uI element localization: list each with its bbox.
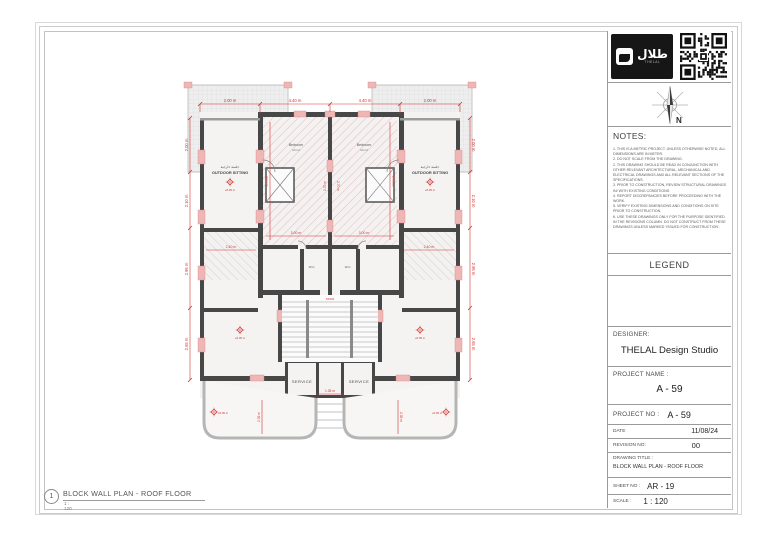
wing-room-left <box>204 232 258 280</box>
project-no-section: PROJECT NO : A - 59 <box>608 404 731 424</box>
svg-text:2.00 m: 2.00 m <box>424 98 437 103</box>
drawing-callout-title: BLOCK WALL PLAN - ROOF FLOOR <box>63 489 205 501</box>
project-name-section: PROJECT NAME : A - 59 <box>608 366 731 404</box>
project-no-value: A - 59 <box>667 410 691 420</box>
svg-text:4.75 m: 4.75 m <box>391 176 395 187</box>
svg-text:W.C.: W.C. <box>309 265 316 269</box>
svg-text:2.40 m: 2.40 m <box>226 245 237 249</box>
svg-text:Bedroom: Bedroom <box>357 143 372 147</box>
svg-text:2.95 m: 2.95 m <box>471 263 476 276</box>
svg-text:SERVICE: SERVICE <box>292 379 312 384</box>
svg-text:جلسة خارجية: جلسة خارجية <box>221 165 240 169</box>
north-compass-row: N <box>608 82 731 126</box>
svg-text:2.35 m: 2.35 m <box>399 412 403 422</box>
north-compass-icon: N <box>649 84 691 126</box>
designer-section: DESIGNER: THELAL Design Studio <box>608 326 731 366</box>
stair <box>282 295 378 362</box>
revision-label: REVISION NO: <box>613 443 646 448</box>
svg-text:جلسة خارجية: جلسة خارجية <box>421 165 440 169</box>
svg-text:3.00 m: 3.00 m <box>359 231 370 235</box>
date-section: DATE 11/08/24 <box>608 424 731 438</box>
designer-label: DESIGNER: <box>613 331 726 338</box>
walkway-steps <box>317 404 343 428</box>
floor-plan: 2.00 m 4.40 m 4.40 m 2.00 m 2.00 m 2.10 … <box>120 80 540 465</box>
svg-text:+8.05 m: +8.05 m <box>235 336 246 340</box>
drawing-title-value: BLOCK WALL PLAN - ROOF FLOOR <box>613 464 726 470</box>
svg-text:2.40 m: 2.40 m <box>424 245 435 249</box>
svg-text:SERVICE: SERVICE <box>349 379 369 384</box>
notes-section: NOTES: 1. THIS IS A METRIC PROJECT. UNLE… <box>608 126 731 253</box>
svg-text:+8.05 m: +8.05 m <box>415 336 426 340</box>
svg-text:+8.05 m: +8.05 m <box>432 411 443 415</box>
svg-text:OUTDOOR SITTING: OUTDOOR SITTING <box>412 170 448 175</box>
svg-text:2.65 m: 2.65 m <box>184 337 189 350</box>
svg-text:4.40 m: 4.40 m <box>359 98 372 103</box>
drawing-number-bubble: 1 <box>44 489 59 504</box>
project-name-label: PROJECT NAME : <box>613 371 726 378</box>
notes-header: NOTES: <box>613 131 726 141</box>
svg-text:2.00 m: 2.00 m <box>184 138 189 151</box>
svg-text:2.70 m: 2.70 m <box>323 181 327 191</box>
date-value: 11/08/24 <box>691 428 726 435</box>
title-block: طلال THELAL N NOTES: 1. THIS IS A M <box>607 31 731 508</box>
svg-text:14 m²: 14 m² <box>292 148 300 152</box>
scale-label: SCALE : <box>613 499 631 504</box>
scale-value: 1 : 120 <box>643 497 667 506</box>
brand-row: طلال THELAL <box>608 31 731 82</box>
svg-text:2.10 m: 2.10 m <box>184 194 189 207</box>
wing-room-right <box>402 232 456 280</box>
logo-arabic-text: طلال <box>637 48 668 60</box>
sheet-no-label: SHEET NO : <box>613 484 640 489</box>
svg-text:+8.05 m: +8.05 m <box>425 188 436 192</box>
project-no-label: PROJECT NO : <box>613 411 659 418</box>
svg-text:4.40 m: 4.40 m <box>289 98 302 103</box>
svg-text:14 m²: 14 m² <box>360 148 368 152</box>
date-label: DATE <box>613 429 625 434</box>
svg-text:STAIR: STAIR <box>326 297 335 301</box>
svg-text:3.00 m: 3.00 m <box>291 231 302 235</box>
drawing-callout-scale: 1 : 120 <box>64 501 72 511</box>
sheet-no-section: SHEET NO : AR - 19 <box>608 477 731 494</box>
designer-value: THELAL Design Studio <box>613 345 726 356</box>
drawing-sheet: 2.00 m 4.40 m 4.40 m 2.00 m 2.00 m 2.10 … <box>0 0 768 543</box>
svg-text:W.C.: W.C. <box>345 265 352 269</box>
north-label: N <box>676 116 682 125</box>
thelal-logo: طلال THELAL <box>611 34 673 79</box>
svg-text:OUTDOOR SITTING: OUTDOOR SITTING <box>212 170 248 175</box>
thelal-logo-icon <box>616 48 633 65</box>
notes-text: 1. THIS IS A METRIC PROJECT. UNLESS OTHE… <box>613 147 726 230</box>
drawing-title-label: DRAWING TITLE : <box>613 456 726 461</box>
svg-text:4.75 m: 4.75 m <box>265 176 269 187</box>
svg-text:2.00 m: 2.00 m <box>471 139 476 152</box>
svg-text:2.00 m: 2.00 m <box>224 98 237 103</box>
scale-section: SCALE : 1 : 120 <box>608 494 731 508</box>
drawing-title-section: DRAWING TITLE : BLOCK WALL PLAN - ROOF F… <box>608 452 731 477</box>
revision-section: REVISION NO: 00 <box>608 438 731 452</box>
svg-text:1.35 m: 1.35 m <box>325 389 335 393</box>
svg-text:+8.05 m: +8.05 m <box>225 188 236 192</box>
svg-text:2.10 m: 2.10 m <box>471 195 476 208</box>
legend-body <box>608 275 731 326</box>
revision-value: 00 <box>692 441 726 450</box>
svg-text:2.95 m: 2.95 m <box>184 262 189 275</box>
svg-text:Bedroom: Bedroom <box>289 143 304 147</box>
svg-text:2.70 m: 2.70 m <box>336 181 340 191</box>
svg-text:2.35 m: 2.35 m <box>257 412 261 422</box>
svg-text:+8.05 m: +8.05 m <box>218 411 229 415</box>
svg-text:2.65 m: 2.65 m <box>471 338 476 351</box>
logo-latin-text: THELAL <box>645 61 661 64</box>
sheet-no-value: AR - 19 <box>647 482 674 491</box>
legend-header: LEGEND <box>608 253 731 275</box>
project-name-value: A - 59 <box>613 384 726 395</box>
qr-code <box>679 33 728 80</box>
